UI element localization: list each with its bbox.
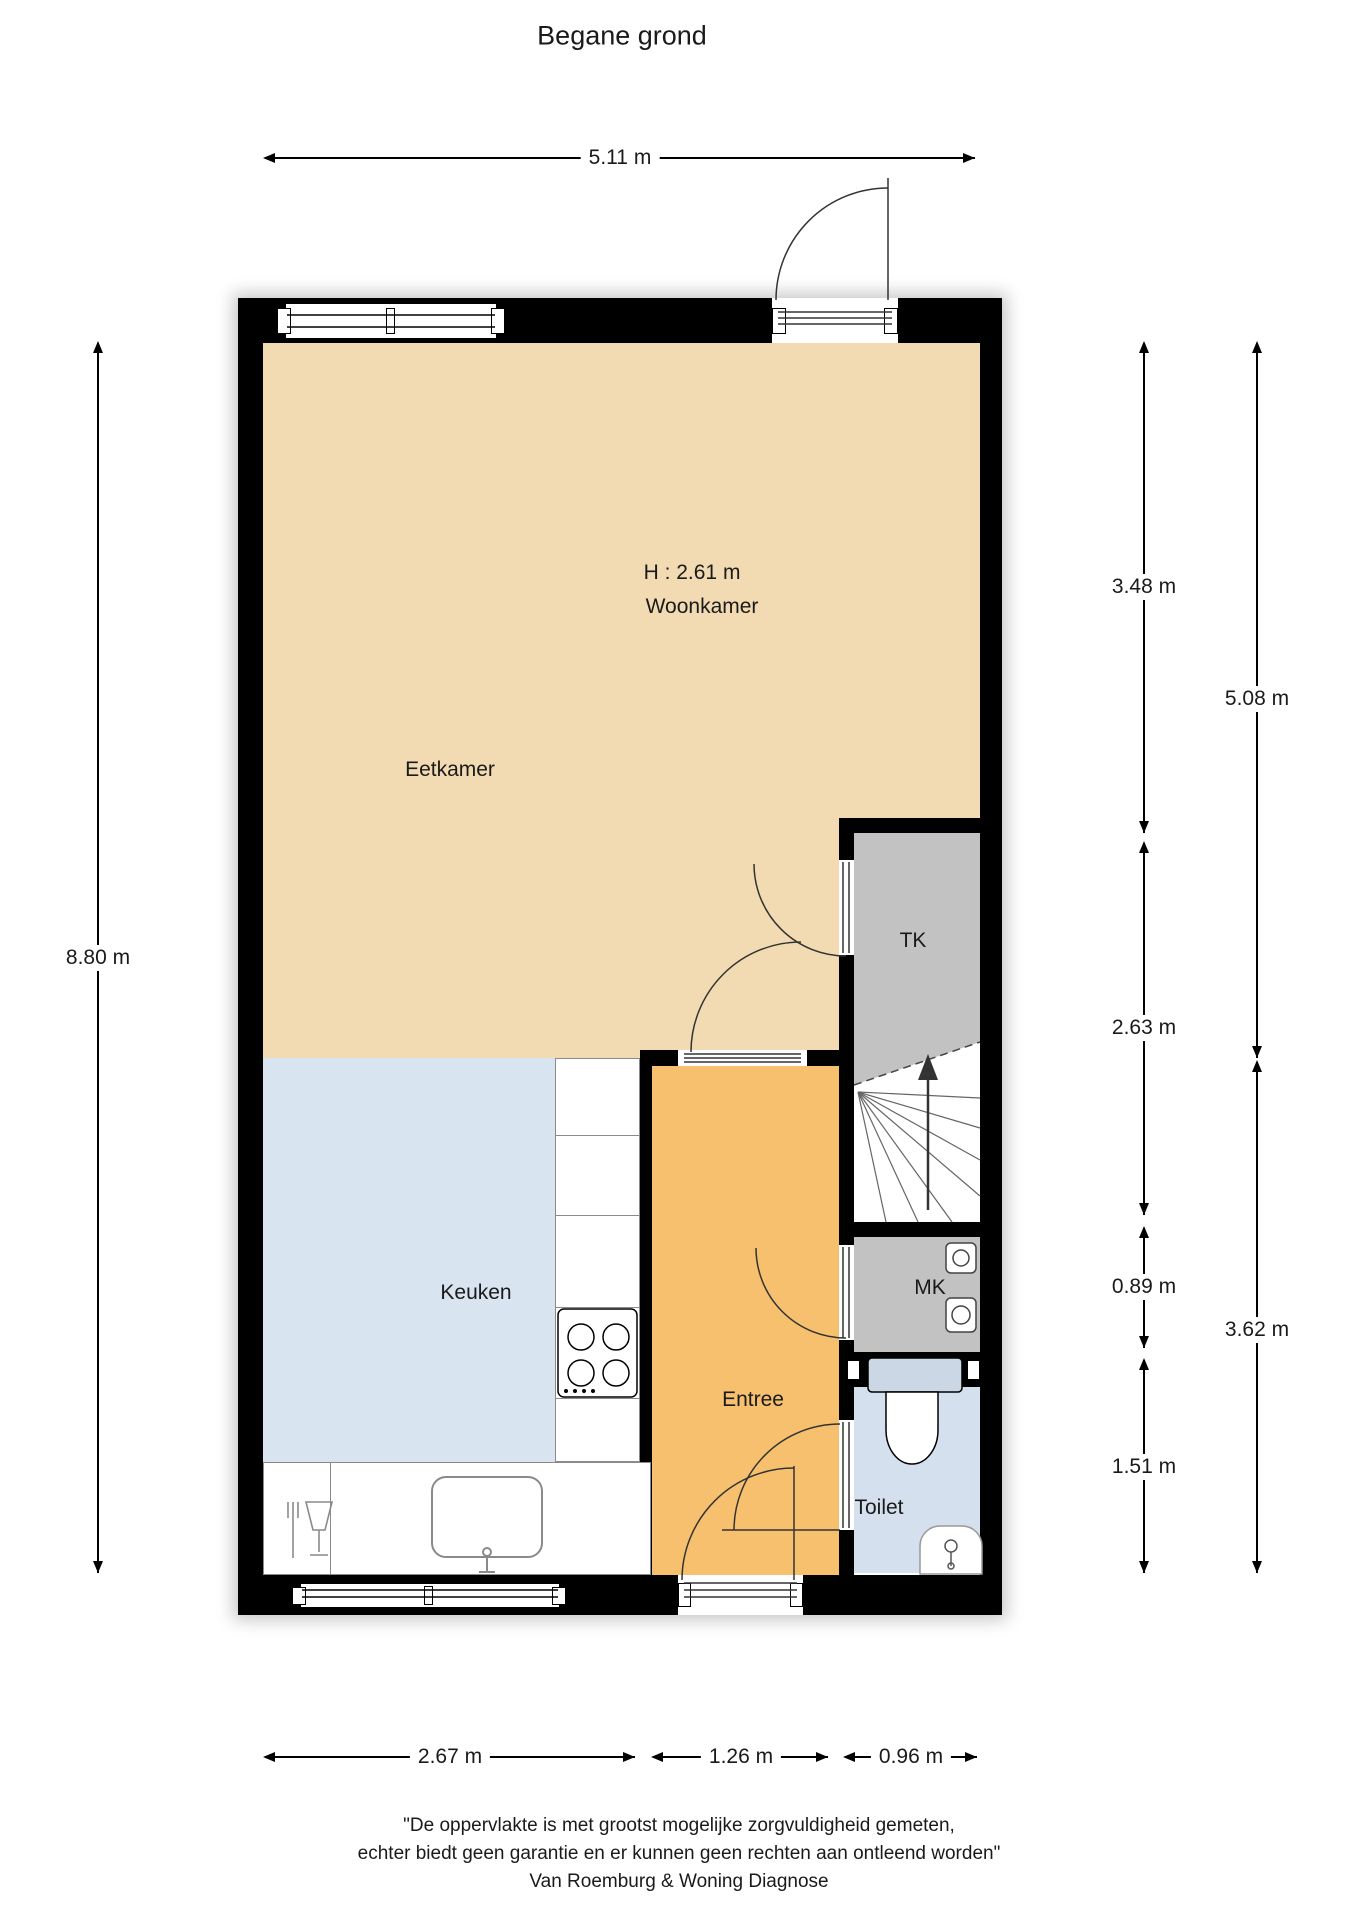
plan-detail-overlay (0, 0, 1358, 1920)
dim-arrow (1252, 341, 1262, 353)
room-label-entree: Entree (722, 1388, 784, 1412)
back-door-icon (682, 1466, 797, 1597)
dim-arrow (651, 1752, 663, 1762)
toilet-basin-icon (920, 1526, 982, 1574)
mk-door-icon (756, 1247, 849, 1338)
dim-arrow (1252, 1561, 1262, 1573)
meter-icons (946, 1243, 976, 1332)
room-label-mk: MK (914, 1276, 946, 1300)
dim-label-bottom-1: 2.67 m (410, 1744, 490, 1770)
dim-label-right-1: 3.48 m (1104, 574, 1184, 600)
dim-arrow (1139, 1226, 1149, 1238)
dim-arrow (1252, 1046, 1262, 1058)
room-label-keuken: Keuken (440, 1281, 511, 1305)
dim-arrow (816, 1752, 828, 1762)
dim-arrow (965, 1752, 977, 1762)
staircase-icon (854, 1042, 980, 1222)
dim-arrow (1139, 821, 1149, 833)
dim-label-bottom-2: 1.26 m (701, 1744, 781, 1770)
dim-arrow (1139, 1203, 1149, 1215)
dim-arrow (623, 1752, 635, 1762)
tk-door-icon (754, 862, 849, 956)
entree-doorway-icon (684, 942, 801, 1062)
dim-arrow (263, 153, 275, 163)
dim-arrow (93, 341, 103, 353)
dim-arrow (1139, 1561, 1149, 1573)
disclaimer-line-3: Van Roemburg & Woning Diagnose (0, 1868, 1358, 1896)
disclaimer-line-1: "De oppervlakte is met grootst mogelijke… (0, 1812, 1358, 1840)
dim-arrow (1252, 1060, 1262, 1072)
dim-label-right-3: 0.89 m (1104, 1274, 1184, 1300)
dim-label-bottom-3: 0.96 m (871, 1744, 951, 1770)
window-glazing-lines (287, 315, 558, 1597)
dim-arrow (1139, 1358, 1149, 1370)
dim-label-top: 5.11 m (581, 145, 660, 171)
dim-label-right-outer-1: 5.08 m (1217, 686, 1297, 712)
dim-arrow (963, 153, 975, 163)
room-label-woonkamer-height: H : 2.61 m (644, 561, 741, 585)
disclaimer-line-2: echter biedt geen garantie en er kunnen … (0, 1840, 1358, 1868)
room-label-tk: TK (900, 929, 927, 953)
cooktop-icon (558, 1309, 637, 1397)
floor-plan-page: Begane grond (0, 0, 1358, 1920)
dishwasher-icon (288, 1502, 332, 1558)
dim-arrow (1139, 841, 1149, 853)
dim-arrow (1139, 341, 1149, 353)
room-label-toilet: Toilet (854, 1496, 903, 1520)
toilet-icon (868, 1358, 962, 1464)
dim-label-right-2: 2.63 m (1104, 1015, 1184, 1041)
room-label-eetkamer: Eetkamer (405, 758, 495, 782)
dim-arrow (843, 1752, 855, 1762)
room-label-woonkamer: Woonkamer (646, 595, 759, 619)
dim-label-right-4: 1.51 m (1104, 1454, 1184, 1480)
dim-label-left: 8.80 m (58, 945, 138, 971)
sink-icon (432, 1477, 542, 1572)
stairs-up-arrow-icon (918, 1054, 938, 1210)
toilet-door-icon (722, 1422, 849, 1530)
dim-arrow (93, 1561, 103, 1573)
dim-arrow (263, 1752, 275, 1762)
dim-arrow (1139, 1336, 1149, 1348)
front-door-icon (776, 178, 892, 324)
disclaimer: "De oppervlakte is met grootst mogelijke… (0, 1812, 1358, 1896)
dim-label-right-outer-2: 3.62 m (1217, 1317, 1297, 1343)
